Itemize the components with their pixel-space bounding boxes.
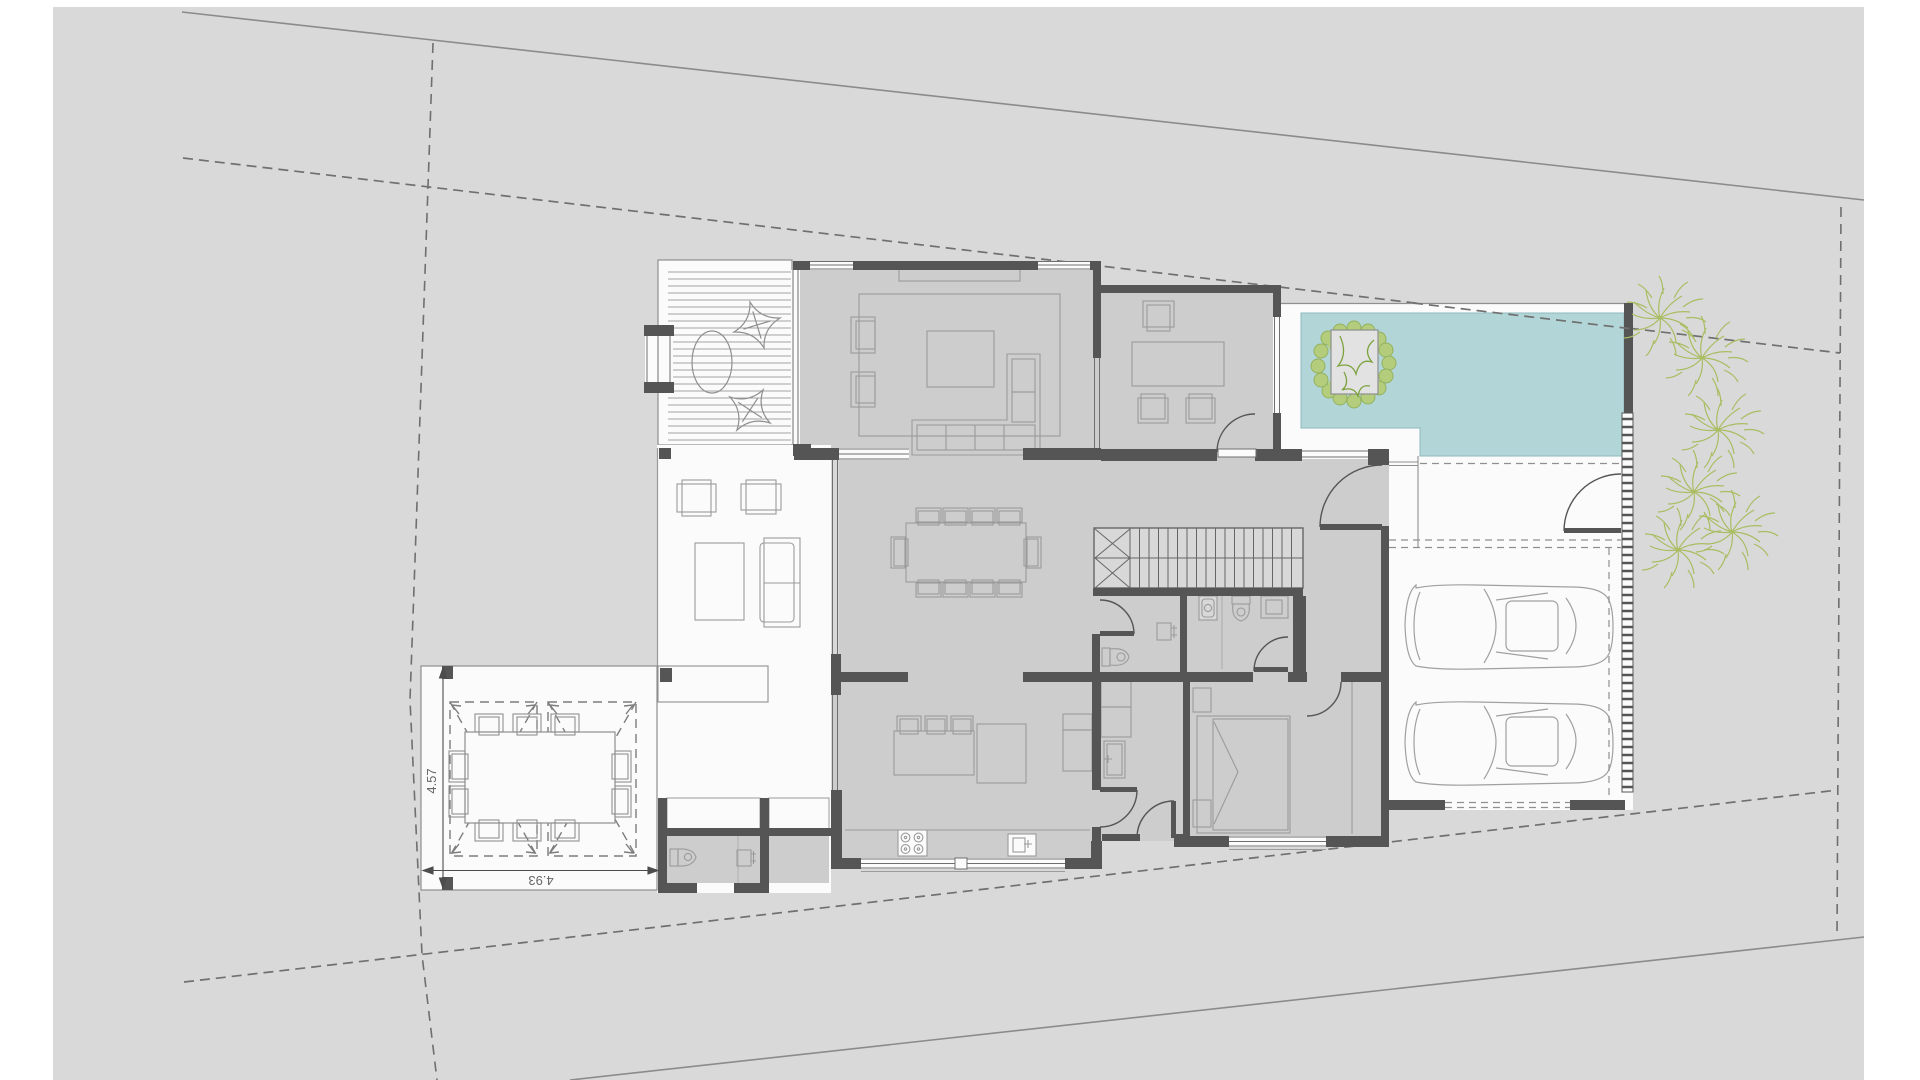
svg-text:4.57: 4.57	[424, 768, 439, 793]
svg-text:4.93: 4.93	[528, 873, 553, 888]
